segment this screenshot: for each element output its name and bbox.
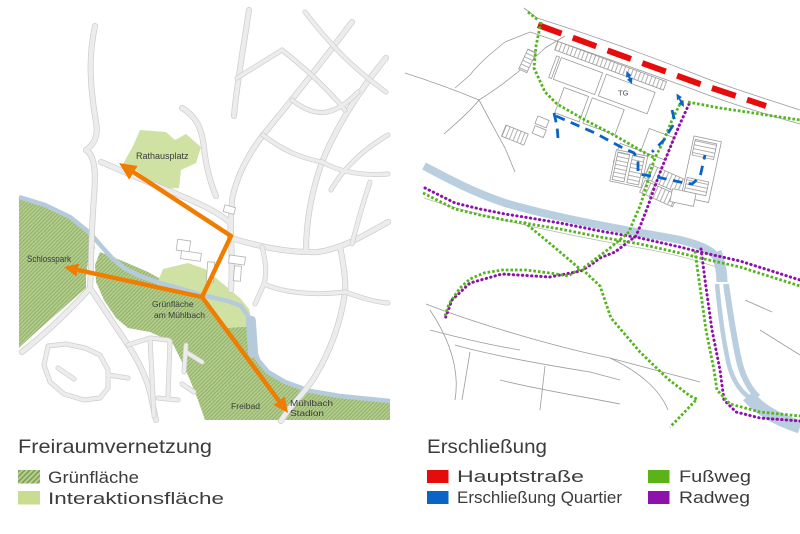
svg-text:am Mühlbach: am Mühlbach xyxy=(154,310,205,320)
svg-text:Stadion: Stadion xyxy=(290,408,324,418)
svg-text:TG: TG xyxy=(618,89,629,98)
svg-text:Hauptstraße: Hauptstraße xyxy=(457,467,584,486)
svg-text:Schlosspark: Schlosspark xyxy=(27,254,71,264)
svg-text:Rathausplatz: Rathausplatz xyxy=(136,151,189,161)
svg-text:Interaktionsfläche: Interaktionsfläche xyxy=(48,489,224,508)
svg-text:Grünfläche: Grünfläche xyxy=(48,468,139,487)
svg-text:Mühlbach: Mühlbach xyxy=(290,398,333,408)
svg-text:Erschließung: Erschließung xyxy=(427,436,547,458)
svg-text:Radweg: Radweg xyxy=(679,488,750,507)
svg-text:Freiraumvernetzung: Freiraumvernetzung xyxy=(18,436,212,458)
svg-text:Grünfläche: Grünfläche xyxy=(152,299,194,309)
svg-text:Erschließung Quartier: Erschließung Quartier xyxy=(457,488,622,507)
svg-text:Fußweg: Fußweg xyxy=(679,467,751,486)
svg-text:Freibad: Freibad xyxy=(231,401,260,411)
